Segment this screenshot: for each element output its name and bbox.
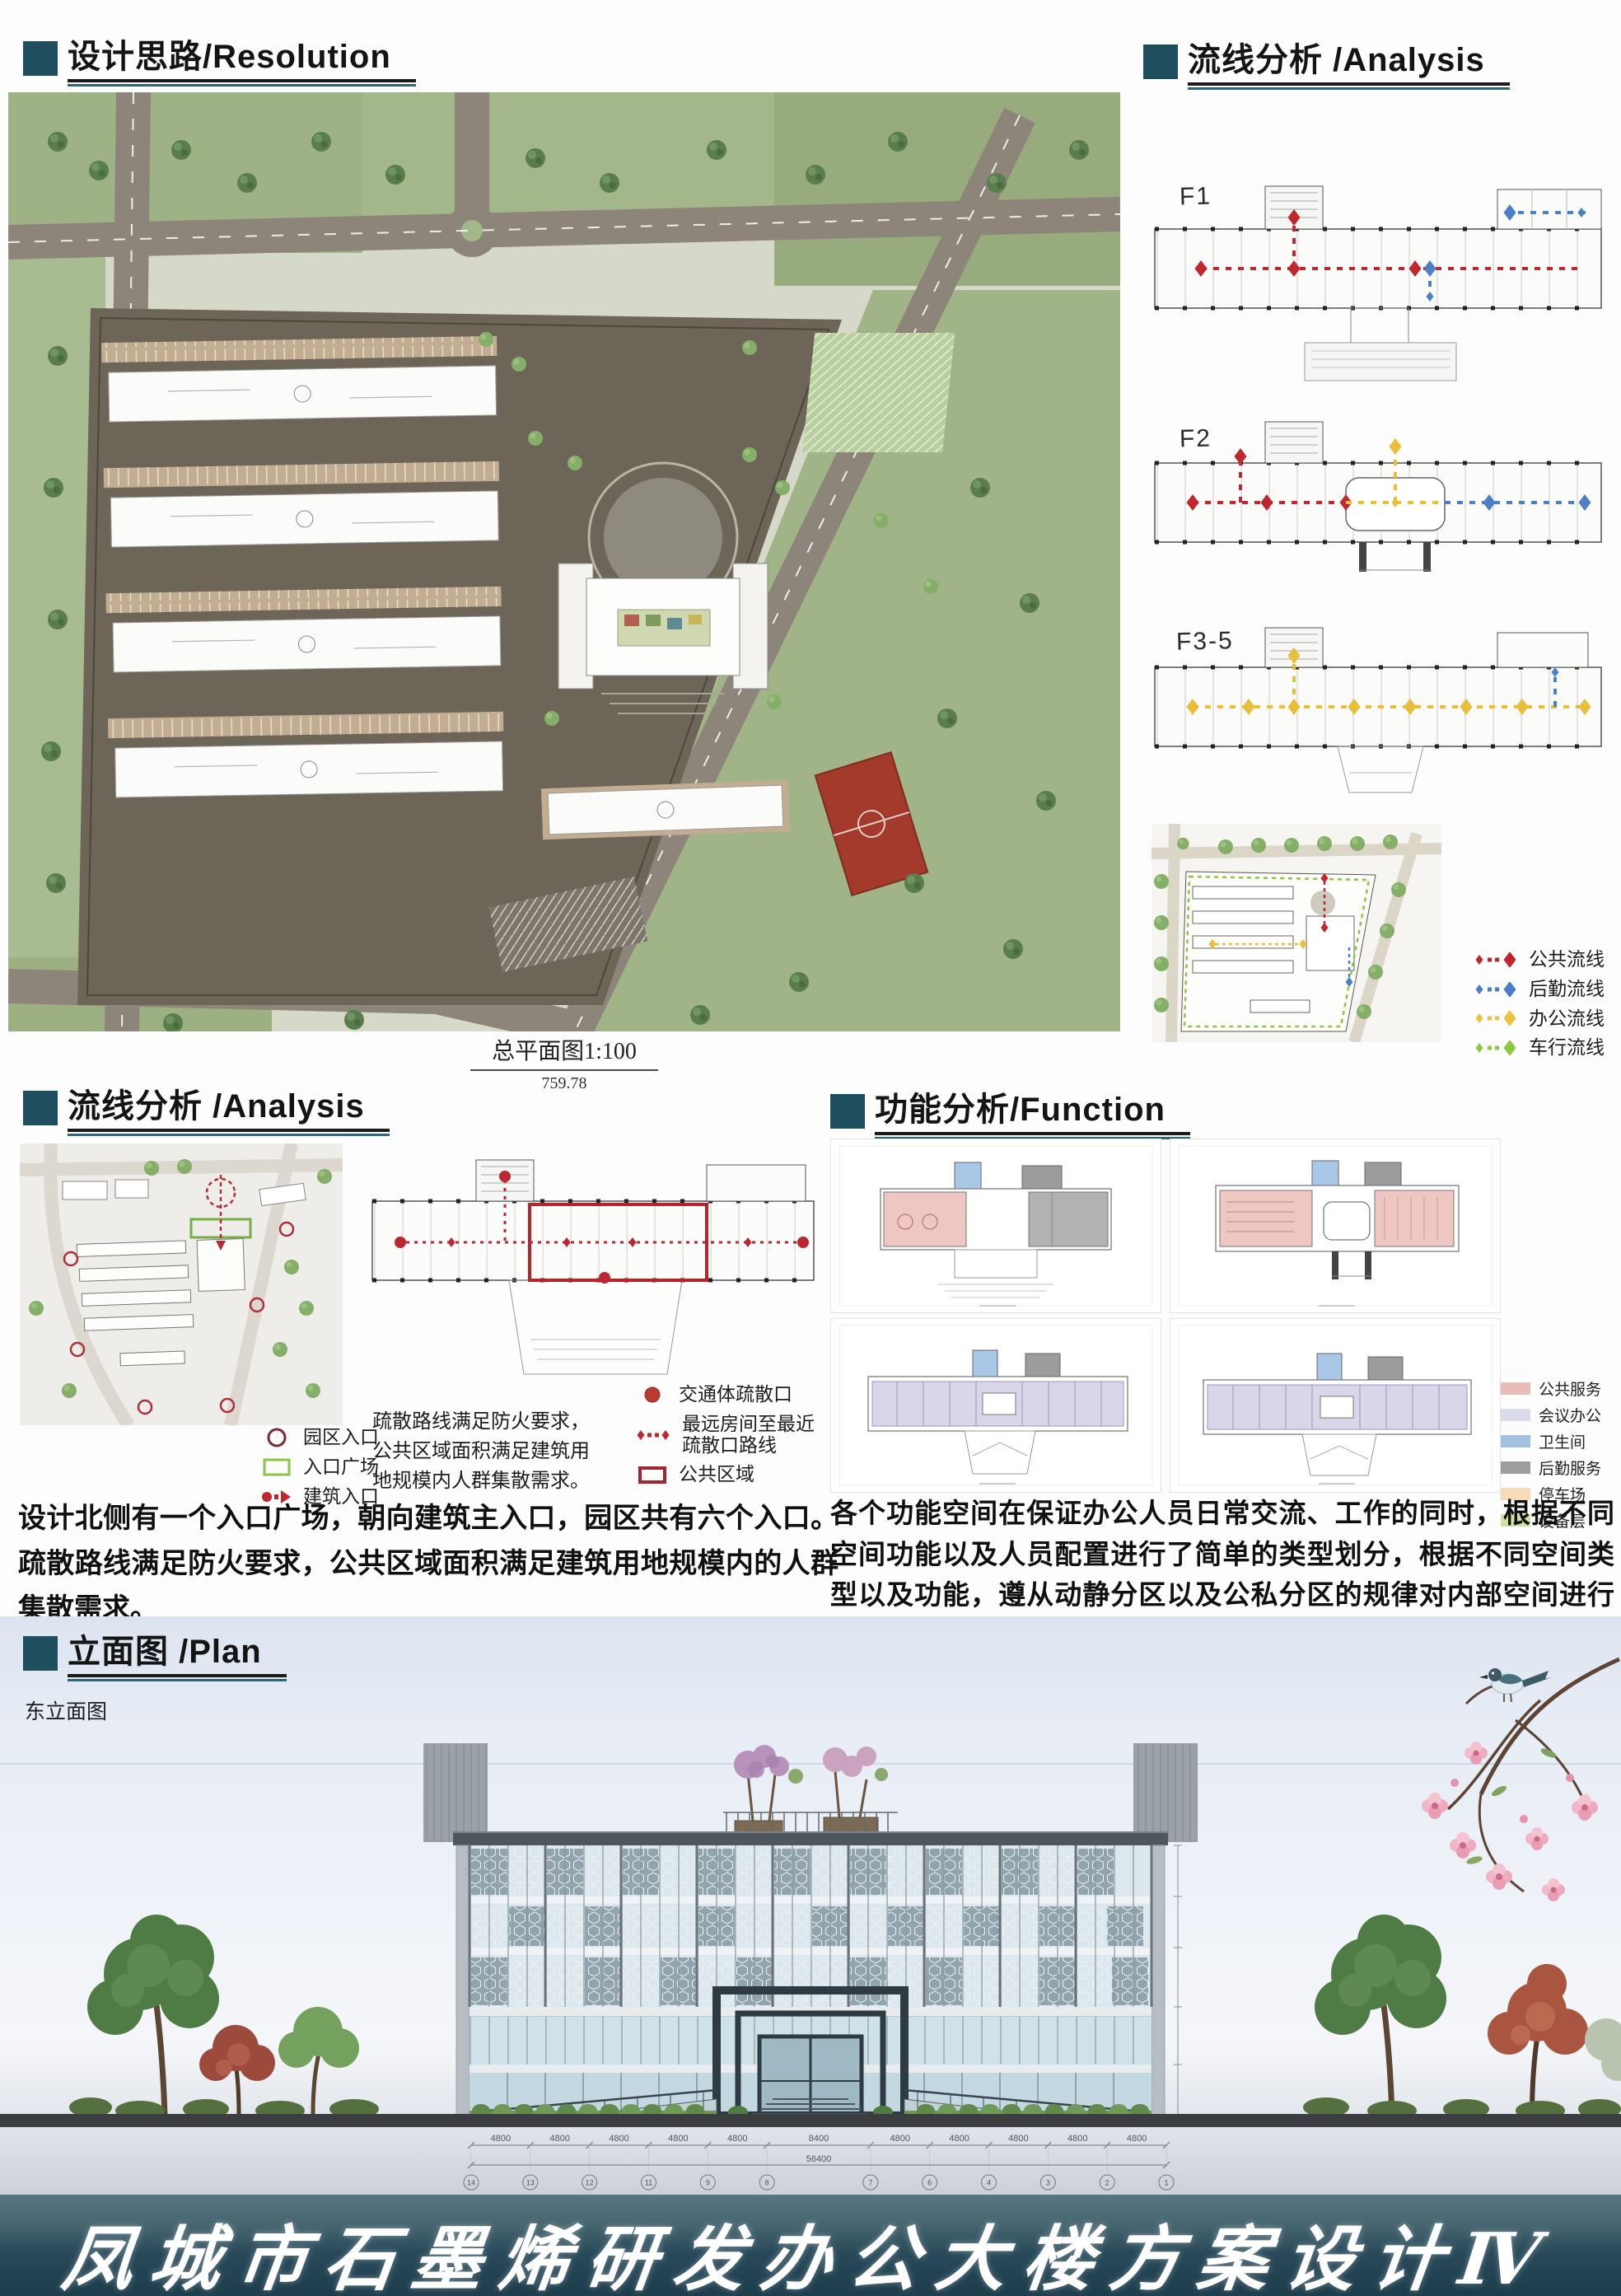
header-underline-accent <box>68 84 416 87</box>
evacuation-note: 疏散路线满足防火要求， 公共区域面积满足建筑用 地规模内人群集散需求。 <box>372 1407 628 1496</box>
floor-label-f2: F2 <box>1180 424 1212 453</box>
rect-outline-icon <box>636 1465 669 1485</box>
header-underline-accent <box>68 1679 287 1681</box>
function-plan-level4-5 <box>1170 1318 1501 1493</box>
section-title: 流线分析 /Analysis <box>68 1089 390 1124</box>
legend-item-meeting-office: 会议办公 <box>1501 1404 1601 1426</box>
legend-item-logistics-service: 后勤服务 <box>1501 1457 1601 1479</box>
color-swatch <box>1501 1409 1530 1421</box>
svg-text:4800: 4800 <box>949 2134 969 2144</box>
svg-text:4800: 4800 <box>1127 2134 1147 2144</box>
header-square-icon <box>23 41 58 76</box>
master-site-plan-drawing <box>8 92 1120 1031</box>
diamond-line-icon <box>1474 982 1519 997</box>
legend-item-evac-exit: 交通体疏散口 <box>636 1384 815 1405</box>
section-header-elevation: 立面图 /Plan <box>23 1634 287 1681</box>
ground-line <box>0 2114 1621 2127</box>
caption-scale-note: 759.78 <box>416 1074 712 1093</box>
presentation-board: 设计思路/Resolution <box>0 0 1621 2296</box>
svg-text:14: 14 <box>467 2179 475 2187</box>
flow-analysis-paragraph: 设计北侧有一个入口广场，朝向建筑主入口，园区共有六个入口。疏散路线满足防火要求，… <box>18 1496 839 1632</box>
svg-text:11: 11 <box>645 2179 652 2187</box>
legend-item-restroom: 卫生间 <box>1501 1430 1601 1452</box>
floor-label-f3-5: F3-5 <box>1176 627 1235 657</box>
right-trees <box>1285 1859 1621 2116</box>
legend-item-vehicle: 车行流线 <box>1474 1037 1605 1059</box>
svg-text:13: 13 <box>526 2179 535 2187</box>
section-header-flow-left: 流线分析 /Analysis <box>23 1089 390 1136</box>
legend-item-evac-route: 最远房间至最近 疏散口路线 <box>636 1414 815 1457</box>
header-underline <box>1188 82 1510 86</box>
legend-item-park-entry: 园区入口 <box>260 1427 379 1448</box>
section-title: 流线分析 /Analysis <box>1188 43 1510 77</box>
svg-text:2: 2 <box>1105 2179 1109 2187</box>
evacuation-plan-drawing <box>361 1143 826 1401</box>
svg-text:8400: 8400 <box>809 2134 829 2144</box>
function-plan-level1 <box>830 1139 1161 1313</box>
svg-text:1: 1 <box>1164 2179 1168 2187</box>
legend-item-entry-plaza: 入口广场 <box>260 1457 379 1478</box>
svg-text:4: 4 <box>987 2179 991 2187</box>
header-underline <box>68 1674 287 1677</box>
filled-circle-icon <box>636 1385 669 1405</box>
function-plan-level2 <box>1170 1139 1501 1313</box>
master-plan-caption: 总平面图1:100 759.78 <box>416 1033 712 1093</box>
legend-item-office: 办公流线 <box>1474 1008 1605 1030</box>
svg-text:56400: 56400 <box>806 2154 832 2164</box>
svg-text:4800: 4800 <box>609 2134 628 2144</box>
legend-item-public-service: 公共服务 <box>1501 1377 1601 1400</box>
color-swatch <box>1501 1435 1530 1447</box>
header-square-icon <box>1143 44 1178 79</box>
header-underline <box>68 79 416 82</box>
left-trees <box>41 1867 395 2116</box>
header-underline-accent <box>68 1134 390 1136</box>
rect-outline-icon <box>260 1457 293 1478</box>
section-header-flow-right: 流线分析 /Analysis <box>1143 43 1510 90</box>
header-square-icon <box>23 1091 58 1125</box>
floor-plan-f2 <box>1143 405 1619 608</box>
svg-text:7: 7 <box>868 2179 872 2187</box>
floor-label-f1: F1 <box>1180 182 1212 211</box>
evacuation-legend: 交通体疏散口 最远房间至最近 疏散口路线 公共区域 <box>636 1384 815 1494</box>
elevation-dimension-strip: 4800480048004800480084004800480048004800… <box>423 2132 1198 2191</box>
project-title-text: 凤城市石墨烯研发办公大楼方案设计 <box>58 2218 1465 2296</box>
circulation-legend: 公共流线 后勤流线 办公流线 车行流线 <box>1474 949 1605 1067</box>
header-underline <box>875 1132 1190 1135</box>
entrance-site-diagram <box>20 1143 343 1425</box>
legend-item-logistics: 后勤流线 <box>1474 979 1605 1000</box>
color-swatch <box>1501 1461 1530 1474</box>
header-square-icon <box>23 1636 58 1671</box>
circulation-site-diagram <box>1152 824 1441 1042</box>
svg-text:4800: 4800 <box>1008 2134 1028 2144</box>
svg-text:12: 12 <box>586 2179 594 2187</box>
header-underline <box>68 1129 390 1132</box>
section-title: 设计思路/Resolution <box>68 40 416 74</box>
legend-item-public: 公共流线 <box>1474 949 1605 970</box>
svg-text:4800: 4800 <box>1067 2134 1087 2144</box>
diamond-line-icon <box>1474 1011 1519 1026</box>
svg-text:4800: 4800 <box>668 2134 688 2144</box>
east-elevation-drawing <box>423 1727 1198 2116</box>
svg-text:4800: 4800 <box>491 2134 511 2144</box>
svg-text:3: 3 <box>1046 2179 1050 2187</box>
project-title: 凤城市石墨烯研发办公大楼方案设计Ⅳ <box>10 2201 1610 2296</box>
header-square-icon <box>830 1094 865 1129</box>
svg-text:4800: 4800 <box>550 2134 570 2144</box>
function-plan-level3 <box>830 1318 1161 1493</box>
caption-text: 总平面图1:100 <box>470 1033 658 1071</box>
bird-icon <box>1479 1668 1552 1702</box>
legend-item-public-area: 公共区域 <box>636 1464 815 1485</box>
svg-text:6: 6 <box>927 2179 932 2187</box>
header-underline-accent <box>1188 87 1510 90</box>
svg-text:8: 8 <box>765 2179 769 2187</box>
section-title: 立面图 /Plan <box>68 1634 287 1669</box>
svg-text:4800: 4800 <box>727 2134 747 2144</box>
diamond-line-icon <box>1474 952 1519 967</box>
diamond-line-icon <box>1474 1040 1519 1055</box>
diamond-line-icon <box>636 1425 672 1445</box>
svg-text:4800: 4800 <box>890 2134 910 2144</box>
color-swatch <box>1501 1382 1530 1395</box>
east-elevation-label: 东立面图 <box>25 1695 107 1725</box>
floor-plan-f1 <box>1143 165 1619 402</box>
section-header-function: 功能分析/Function <box>830 1092 1190 1139</box>
circle-outline-icon <box>260 1427 293 1448</box>
section-title: 功能分析/Function <box>875 1092 1190 1127</box>
section-header-resolution: 设计思路/Resolution <box>23 40 416 87</box>
project-title-numeral: Ⅳ <box>1455 2218 1562 2296</box>
svg-text:9: 9 <box>706 2179 710 2187</box>
